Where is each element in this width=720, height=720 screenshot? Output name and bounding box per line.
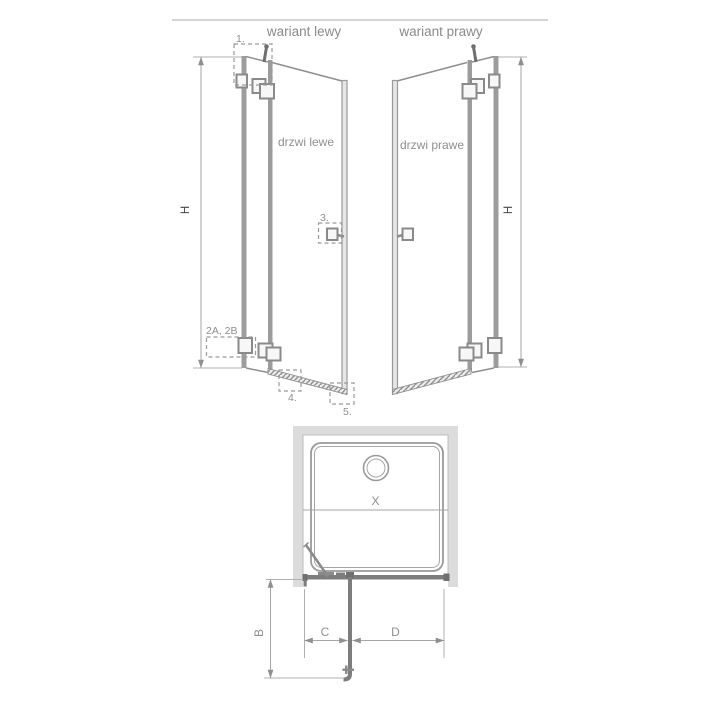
- height-dimension-left: H: [180, 57, 243, 368]
- shower-door-technical-diagram: wariant lewy wariant prawy H: [0, 0, 720, 720]
- segment-letter-d: D: [391, 625, 400, 639]
- height-letter-left: H: [180, 206, 192, 214]
- segment-dimension-d: D: [353, 589, 445, 658]
- top-pivot-right: [471, 44, 476, 62]
- door-glass-edge-right: [393, 81, 398, 394]
- door-label-right: drzwi prawe: [400, 138, 464, 152]
- depth-dimension-b: B: [252, 580, 343, 679]
- wall-profile-right: [494, 56, 499, 368]
- top-pivot-left: [264, 44, 269, 62]
- segment-dimension-c: C: [305, 589, 348, 658]
- part-label-5: 5.: [343, 406, 352, 418]
- door-open-handle: [343, 669, 355, 672]
- height-letter-right: H: [503, 206, 515, 214]
- plan-view: X B: [252, 426, 458, 680]
- part-label-1: 1.: [236, 33, 245, 45]
- door-handle-right: [397, 229, 413, 241]
- hinge-post-right: [468, 60, 473, 372]
- fixed-panel-bottom-edge-left: [246, 368, 268, 373]
- wall-profile-left: [242, 56, 247, 368]
- right-variant-elevation: H: [393, 44, 528, 394]
- left-variant-elevation: H: [180, 33, 354, 418]
- door-open-position: [343, 577, 355, 680]
- door-top-edge-left: [272, 63, 342, 82]
- fixed-panel-bottom-edge-right: [472, 368, 494, 373]
- part-label-3: 3.: [320, 212, 329, 224]
- part-label-2a-2b: 2A, 2B: [206, 325, 238, 337]
- width-letter-x: X: [371, 494, 379, 508]
- enclosure-bottom-frame: [303, 572, 450, 587]
- part-label-4: 4.: [288, 392, 297, 404]
- door-top-edge-right: [397, 63, 467, 82]
- hinge-post-left: [268, 60, 273, 372]
- wall-right: [448, 426, 458, 587]
- wall-left: [293, 426, 303, 587]
- height-dimension-right: H: [497, 57, 527, 367]
- depth-letter-b: B: [252, 629, 266, 637]
- diagram-canvas: wariant lewy wariant prawy H: [0, 0, 720, 720]
- segment-letter-c: C: [321, 625, 330, 639]
- bottom-seal-rail-right: [393, 369, 472, 395]
- wall-top: [293, 426, 458, 435]
- variant-left-title: wariant lewy: [266, 24, 342, 39]
- variant-right-title: wariant prawy: [398, 24, 483, 39]
- door-label-left: drzwi lewe: [278, 135, 334, 149]
